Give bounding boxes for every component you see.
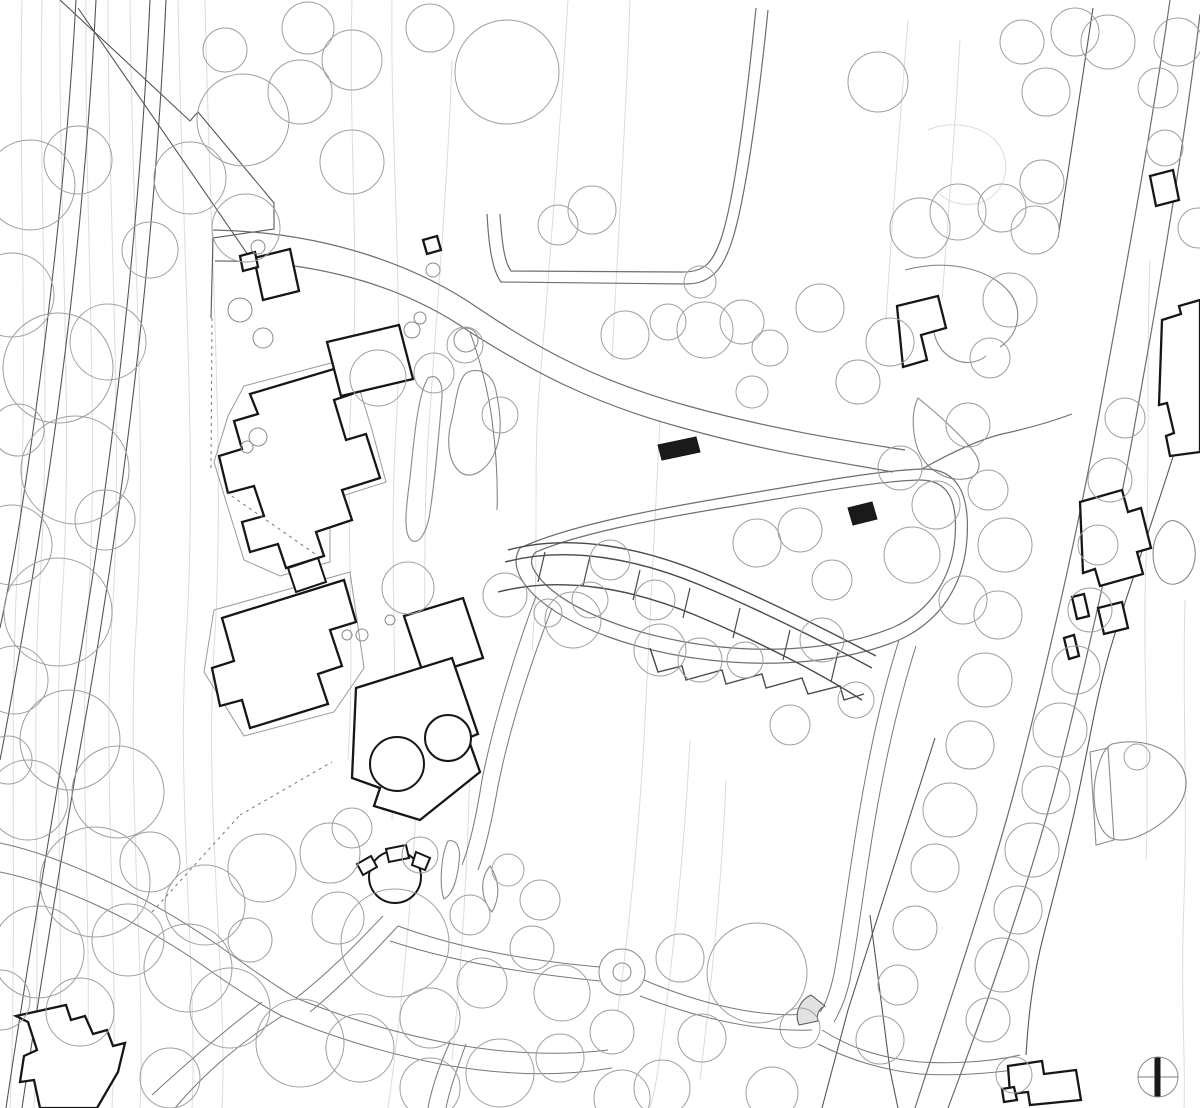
contours-item bbox=[178, 0, 193, 1108]
trees-item bbox=[800, 618, 844, 662]
contours-item bbox=[10, 0, 23, 1108]
buildings-item bbox=[1159, 300, 1200, 456]
dashed-boundaries-item bbox=[152, 815, 240, 912]
contours-item bbox=[532, 0, 568, 650]
boundaries-item bbox=[822, 738, 935, 1108]
trees-item bbox=[1051, 8, 1099, 56]
garden-beds-item bbox=[406, 377, 442, 542]
trees-item bbox=[1138, 68, 1178, 108]
trees-item bbox=[946, 403, 990, 447]
trees-item bbox=[978, 184, 1026, 232]
trees-item bbox=[44, 126, 112, 194]
buildings-layer bbox=[16, 170, 1200, 1108]
trees-item bbox=[1154, 18, 1200, 66]
roads-layer bbox=[213, 0, 1200, 1108]
trees-item bbox=[0, 760, 68, 840]
trees-item bbox=[382, 562, 434, 614]
buildings-item bbox=[1080, 490, 1151, 586]
trees-item bbox=[890, 198, 950, 258]
minor-paths-item bbox=[398, 926, 600, 967]
trees-item bbox=[634, 1060, 690, 1108]
contours-item bbox=[612, 0, 630, 360]
garden-beds-layer bbox=[406, 265, 1195, 912]
minor-paths-item bbox=[446, 1044, 466, 1108]
trees-item bbox=[946, 721, 994, 769]
minor-paths-item bbox=[390, 941, 600, 981]
trees-item bbox=[836, 360, 880, 404]
building-circles-item bbox=[370, 737, 424, 791]
trees-item bbox=[0, 646, 48, 714]
trees-item bbox=[483, 573, 527, 617]
terrace-item bbox=[505, 555, 872, 668]
minor-paths-item bbox=[478, 608, 552, 870]
minor-paths-item bbox=[822, 1030, 1020, 1063]
trees-item bbox=[812, 560, 852, 600]
trees-item bbox=[601, 311, 649, 359]
contours-item bbox=[58, 0, 67, 1108]
trees-item bbox=[966, 998, 1010, 1042]
trees-item bbox=[0, 140, 75, 230]
trees-item bbox=[1022, 766, 1070, 814]
contours-item bbox=[618, 420, 660, 1010]
minor-paths-item bbox=[175, 1016, 282, 1108]
slabs-item bbox=[658, 437, 700, 460]
buildings-item bbox=[1064, 635, 1079, 659]
trees-item bbox=[312, 892, 364, 944]
garden-beds-item bbox=[913, 398, 979, 479]
trees-item bbox=[72, 746, 164, 838]
minor-paths-item bbox=[818, 1044, 1024, 1075]
small-circles-item bbox=[253, 328, 273, 348]
terrace-walls-item bbox=[683, 588, 690, 618]
trees-item bbox=[92, 904, 164, 976]
trees-item bbox=[1005, 823, 1059, 877]
trees-item bbox=[457, 958, 507, 1008]
contours-item bbox=[886, 20, 908, 320]
contours-item bbox=[1183, 600, 1186, 1108]
trees-item bbox=[1124, 744, 1150, 770]
terrace-item bbox=[498, 585, 862, 700]
trees-item bbox=[727, 642, 763, 678]
minor-paths-item bbox=[470, 332, 497, 510]
trees-item bbox=[752, 330, 788, 366]
trees-item bbox=[322, 30, 382, 90]
roads-item bbox=[531, 480, 955, 649]
trees-item bbox=[568, 186, 616, 234]
trees-item bbox=[534, 965, 590, 1021]
minor-paths-item bbox=[282, 1016, 612, 1074]
building-details-item bbox=[386, 845, 409, 862]
trees-item bbox=[884, 527, 940, 583]
slabs-item bbox=[848, 502, 877, 525]
trees-item bbox=[1178, 208, 1200, 248]
small-circles-item bbox=[414, 312, 426, 324]
trees-item bbox=[893, 906, 937, 950]
trees-item bbox=[447, 327, 483, 363]
trees-item bbox=[203, 28, 247, 72]
contours-item bbox=[928, 125, 1006, 205]
drawing-page bbox=[0, 0, 1200, 1108]
trees-item bbox=[856, 1016, 904, 1064]
roads-item bbox=[922, 414, 1072, 469]
terrace-walls-item bbox=[783, 630, 790, 660]
trees-item bbox=[778, 508, 822, 552]
contours-item bbox=[650, 740, 690, 1108]
trees-item bbox=[978, 518, 1032, 572]
trees-item bbox=[656, 934, 704, 982]
boundaries-item bbox=[870, 915, 898, 1108]
trees-item bbox=[983, 273, 1037, 327]
trees-item bbox=[1033, 703, 1087, 757]
buildings-item bbox=[1098, 602, 1128, 634]
trees-item bbox=[545, 592, 601, 648]
trees-item bbox=[970, 338, 1010, 378]
trees-item bbox=[878, 446, 922, 490]
trees-item bbox=[968, 470, 1008, 510]
small-circles-item bbox=[228, 298, 252, 322]
buildings-item bbox=[254, 249, 299, 300]
trees-item bbox=[736, 376, 768, 408]
roads-item bbox=[487, 10, 768, 284]
trees-item bbox=[144, 924, 232, 1012]
trees-item bbox=[923, 783, 977, 837]
buildings-item bbox=[16, 1005, 125, 1108]
buildings-item bbox=[1008, 1061, 1081, 1105]
trees-item bbox=[733, 519, 781, 567]
contours-item bbox=[452, 760, 470, 1060]
trees-item bbox=[930, 184, 986, 240]
trees-item bbox=[536, 1034, 584, 1082]
trees-item bbox=[594, 1070, 650, 1108]
garden-beds-item bbox=[1094, 742, 1186, 840]
contours-item bbox=[942, 40, 960, 300]
trees-item bbox=[406, 4, 454, 52]
terrace-layer bbox=[498, 543, 876, 700]
trees-item bbox=[228, 918, 272, 962]
contours-item bbox=[34, 0, 45, 1108]
trees-item bbox=[70, 304, 146, 380]
trees-item bbox=[20, 690, 120, 790]
trees-item bbox=[796, 284, 844, 332]
buildings-item bbox=[219, 366, 380, 568]
trees-item bbox=[228, 834, 296, 902]
minor-paths-item bbox=[428, 1042, 450, 1108]
trees-item bbox=[40, 827, 150, 937]
trees-item bbox=[1147, 130, 1183, 166]
boundaries-item bbox=[22, 0, 166, 1108]
buildings-item bbox=[212, 580, 356, 728]
small-circles-item bbox=[251, 240, 265, 254]
trees-item bbox=[1000, 20, 1044, 64]
trees-item bbox=[678, 1014, 726, 1062]
contours-item bbox=[700, 780, 726, 1080]
garden-beds-item bbox=[483, 866, 498, 912]
trees-item bbox=[707, 923, 807, 1023]
trees-item bbox=[282, 2, 334, 54]
trees-item bbox=[975, 938, 1029, 992]
small-circles-item bbox=[426, 263, 440, 277]
trees-item bbox=[958, 653, 1012, 707]
trees-item bbox=[332, 808, 372, 848]
buildings-item bbox=[1072, 594, 1089, 619]
trees-item bbox=[0, 404, 44, 456]
trees-item bbox=[268, 60, 332, 124]
dashed-boundaries-item bbox=[240, 762, 332, 815]
buildings-item bbox=[1150, 170, 1179, 206]
trees-item bbox=[154, 142, 226, 214]
roads-item bbox=[516, 469, 967, 663]
contours-item bbox=[1145, 260, 1150, 860]
buildings-item bbox=[1002, 1087, 1017, 1102]
trees-item bbox=[492, 854, 524, 886]
building-circles-item bbox=[425, 715, 471, 761]
trees-item bbox=[1011, 206, 1059, 254]
trees-item bbox=[510, 926, 554, 970]
site-plan-canvas bbox=[0, 0, 1200, 1108]
trees-item bbox=[165, 865, 245, 945]
minor-paths-item bbox=[296, 998, 608, 1053]
trees-item bbox=[455, 20, 559, 124]
trees-item bbox=[848, 52, 908, 112]
trees-item bbox=[0, 253, 54, 337]
trees-item bbox=[1022, 68, 1070, 116]
boundaries-item bbox=[78, 8, 266, 281]
trees-item bbox=[770, 705, 810, 745]
trees-item bbox=[590, 1010, 634, 1054]
garden-beds-item bbox=[1153, 520, 1195, 584]
trees-item bbox=[720, 300, 764, 344]
trees-item bbox=[1020, 160, 1064, 204]
trees-item bbox=[911, 844, 959, 892]
buildings-item bbox=[897, 296, 946, 367]
slabs-item bbox=[1155, 1058, 1160, 1096]
trees-item bbox=[878, 965, 918, 1005]
trees-item bbox=[650, 304, 686, 340]
trees-item bbox=[538, 205, 578, 245]
trees-item bbox=[1105, 398, 1145, 438]
dashed-boundaries-item bbox=[211, 318, 212, 470]
boundaries-item bbox=[1058, 8, 1093, 238]
terrace-walls-item bbox=[583, 556, 590, 586]
small-circles-item bbox=[404, 322, 420, 338]
trees-item bbox=[677, 302, 733, 358]
boundaries-item bbox=[6, 0, 150, 1108]
trees-item bbox=[197, 74, 289, 166]
buildings-item bbox=[423, 236, 441, 254]
garden-beds-item bbox=[441, 841, 459, 899]
small-circles-item bbox=[599, 949, 645, 995]
trees-item bbox=[326, 1014, 394, 1082]
small-circles-item bbox=[454, 328, 478, 352]
trees-item bbox=[0, 505, 52, 585]
small-circles-item bbox=[356, 629, 368, 641]
trees-item bbox=[634, 624, 686, 676]
trees-item bbox=[256, 999, 344, 1087]
trees-item bbox=[75, 490, 135, 550]
trees-layer bbox=[0, 2, 1200, 1108]
trees-item bbox=[1081, 15, 1135, 69]
trees-item bbox=[520, 880, 560, 920]
trees-item bbox=[300, 823, 360, 883]
trees-item bbox=[746, 1067, 798, 1108]
contours-item bbox=[85, 0, 93, 1108]
trees-item bbox=[450, 895, 490, 935]
